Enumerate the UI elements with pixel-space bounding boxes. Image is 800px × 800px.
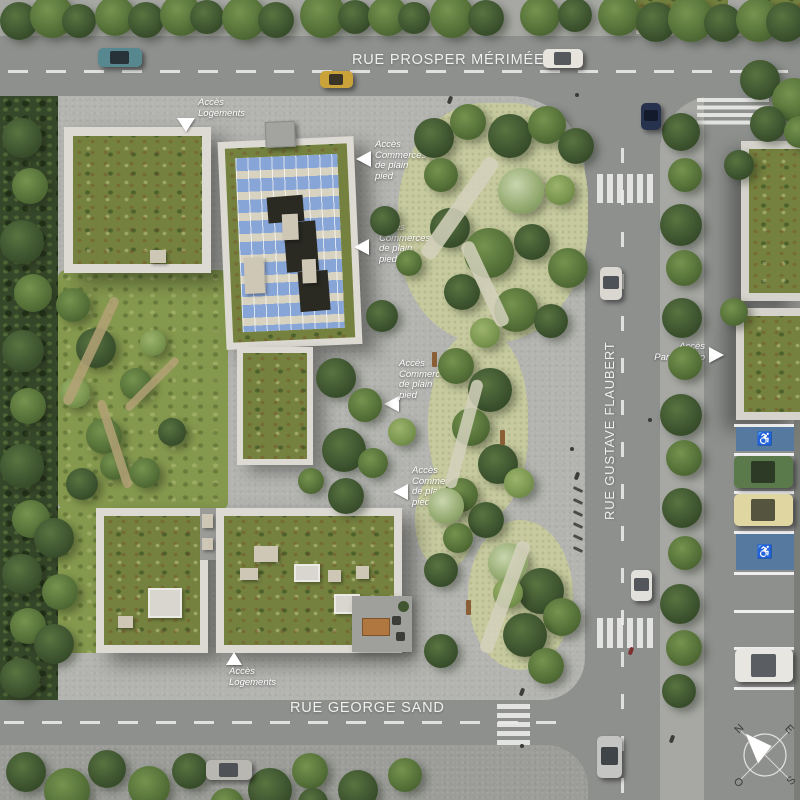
tree <box>10 388 46 424</box>
tree <box>443 523 473 553</box>
car-windshield <box>110 51 128 64</box>
tree <box>468 502 504 538</box>
street-lamp <box>648 418 652 422</box>
roof-access-box <box>282 214 299 241</box>
tree <box>172 753 208 789</box>
skylight <box>294 564 320 582</box>
crosswalk-south <box>597 618 656 648</box>
roof-access-box <box>254 546 278 562</box>
street-label-prosper-merimee: RUE PROSPER MÉRIMÉE <box>352 52 542 68</box>
tree <box>545 175 575 205</box>
tree <box>504 468 534 498</box>
tree <box>370 206 400 236</box>
roof-access-box <box>328 570 341 582</box>
street-lamp <box>575 93 579 97</box>
handicap-parking-spot: ♿ <box>736 427 794 451</box>
car-windshield <box>554 52 571 65</box>
lane-dashes-right-road <box>621 148 624 796</box>
compass-letter-s: S <box>785 774 799 788</box>
roof-access-box <box>118 616 133 628</box>
terrace-plant <box>398 601 409 612</box>
person <box>628 647 634 656</box>
building-northwest <box>64 127 211 273</box>
tree <box>514 224 550 260</box>
building-solar <box>218 136 363 350</box>
arrow-up-icon <box>226 652 242 665</box>
roof-structure <box>265 121 296 148</box>
tree <box>396 250 422 276</box>
car <box>734 456 793 488</box>
building-solar-wing <box>237 347 313 465</box>
tree <box>558 128 594 164</box>
arrow-left-icon <box>393 484 408 500</box>
skylight <box>148 588 182 618</box>
street-lamp <box>570 447 574 451</box>
street-label-george-sand: RUE GEORGE SAND <box>290 700 440 716</box>
roof-access-box <box>302 259 317 284</box>
tree <box>2 554 42 594</box>
tree <box>414 118 454 158</box>
tree <box>660 204 702 246</box>
tree <box>428 488 464 524</box>
tree <box>66 468 98 500</box>
tree <box>140 330 166 356</box>
arrow-left-icon <box>384 396 399 412</box>
street-lamp <box>520 744 524 748</box>
tree <box>662 488 702 528</box>
tree <box>42 574 78 610</box>
parking-line <box>734 610 794 613</box>
green-roof <box>749 149 800 293</box>
crosswalk-north <box>597 174 656 203</box>
tree <box>298 468 324 494</box>
lane-dashes-top-road <box>8 70 796 73</box>
car <box>543 49 583 68</box>
tree <box>424 634 458 668</box>
handicap-parking-spot: ♿ <box>736 534 794 570</box>
green-roof <box>73 136 202 264</box>
tree <box>34 518 74 558</box>
tree <box>62 4 96 38</box>
tree <box>424 158 458 192</box>
tree <box>328 478 364 514</box>
tree <box>14 274 52 312</box>
tree <box>662 674 696 708</box>
tree <box>424 553 458 587</box>
tree <box>158 418 186 446</box>
tree <box>750 106 786 142</box>
green-roof <box>243 353 307 459</box>
tree <box>543 598 581 636</box>
tree <box>660 584 700 624</box>
arrow-left-icon <box>356 151 371 167</box>
tree <box>450 104 486 140</box>
parking-line <box>734 572 794 575</box>
tree <box>358 448 388 478</box>
roof-access-box <box>202 514 213 528</box>
handicap-icon: ♿ <box>757 431 773 447</box>
compass-north-needle <box>745 733 772 764</box>
tree <box>56 288 90 322</box>
tree <box>668 346 702 380</box>
tree <box>534 304 568 338</box>
car-windshield <box>751 461 776 483</box>
green-roof <box>744 316 800 412</box>
arrow-down-icon <box>177 118 195 132</box>
street-label-gustave-flaubert: RUE GUSTAVE FLAUBERT <box>602 335 617 520</box>
car <box>735 649 793 682</box>
tree <box>2 118 42 158</box>
bench <box>432 352 437 367</box>
roof-access-box <box>356 566 369 579</box>
arrow-right-icon <box>709 347 724 363</box>
compass-rose: N E S O <box>727 717 800 793</box>
ground-terrace <box>352 596 412 652</box>
tree <box>398 2 430 34</box>
tree <box>0 444 44 488</box>
tree <box>668 536 702 570</box>
terrace-chair <box>392 616 401 625</box>
arrow-left-icon <box>354 239 369 255</box>
tree <box>34 624 74 664</box>
tree <box>666 440 702 476</box>
car <box>597 736 622 778</box>
tree <box>438 348 474 384</box>
terrace-notch <box>200 508 216 560</box>
solar-panel-field <box>235 154 344 332</box>
car <box>600 267 622 300</box>
tree <box>6 752 46 792</box>
car-windshield <box>601 747 619 765</box>
tree <box>88 750 126 788</box>
car <box>206 760 252 780</box>
annotation-acces-logements-nord: Accès Logements <box>198 98 245 119</box>
tree <box>528 648 564 684</box>
handicap-icon: ♿ <box>757 544 773 560</box>
tree <box>660 394 702 436</box>
building-south-west <box>96 508 208 653</box>
bench <box>466 600 471 615</box>
tree <box>488 114 532 158</box>
car-windshield <box>603 276 618 290</box>
tree <box>338 0 372 34</box>
tree <box>668 158 702 192</box>
building-parking-silo-south <box>736 308 800 420</box>
tree <box>388 758 422 792</box>
roof-access-box <box>150 250 166 263</box>
tree <box>720 298 748 326</box>
tree <box>662 113 700 151</box>
tree <box>468 0 504 36</box>
tree <box>0 658 40 698</box>
tree <box>666 250 702 286</box>
parking-line <box>734 687 794 690</box>
tree <box>2 330 44 372</box>
tree <box>316 358 356 398</box>
tree <box>0 220 44 264</box>
tree <box>498 168 544 214</box>
tree <box>258 2 294 38</box>
car <box>320 71 353 88</box>
tree <box>662 298 702 338</box>
roof-access-box <box>244 257 266 294</box>
tree <box>388 418 416 446</box>
bench <box>500 430 505 445</box>
terrace-table <box>362 618 390 636</box>
car <box>631 570 652 601</box>
car <box>98 48 142 67</box>
compass-letter-o: O <box>731 775 746 790</box>
terrace-chair <box>396 632 405 641</box>
parking-line <box>734 424 794 427</box>
crosswalk-george-sand <box>497 704 530 746</box>
roof-access-box <box>240 568 258 580</box>
site-plan-map: ♿ ♿ RUE PROSPER MÉRIMÉE RUE GUSTAVE FLAU… <box>0 0 800 800</box>
tree <box>766 2 800 42</box>
roof-access-box <box>202 538 213 550</box>
compass-letter-e: E <box>782 723 796 737</box>
car-windshield <box>751 499 776 521</box>
car-windshield <box>219 763 238 777</box>
car <box>641 103 661 130</box>
car-windshield <box>644 110 658 121</box>
lane-dashes-bottom-road <box>4 721 560 724</box>
tree <box>348 388 382 422</box>
tree <box>292 753 328 789</box>
tree <box>128 766 170 800</box>
tree <box>666 630 702 666</box>
car <box>734 494 793 526</box>
car-windshield <box>329 74 343 86</box>
tree <box>548 248 588 288</box>
tree <box>190 0 224 34</box>
parking-line <box>734 531 794 534</box>
tree <box>12 168 48 204</box>
annotation-acces-logements-sud: Accès Logements <box>229 667 276 688</box>
car-windshield <box>751 654 775 677</box>
tree <box>130 458 160 488</box>
car-windshield <box>634 578 649 591</box>
tree <box>128 2 164 38</box>
tree <box>724 150 754 180</box>
tree <box>366 300 398 332</box>
